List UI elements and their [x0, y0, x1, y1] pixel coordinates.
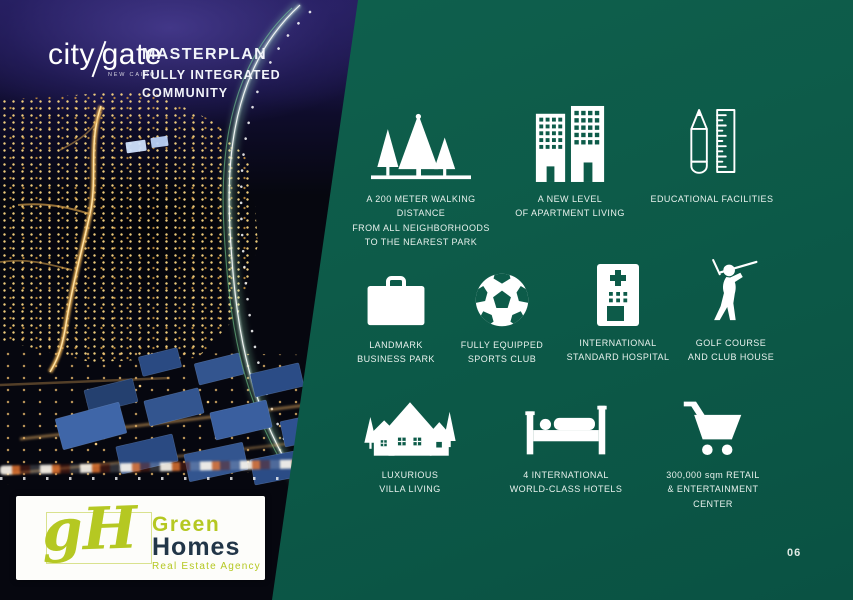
title-masterplan: MASTERPLAN [142, 46, 281, 64]
hospital-icon [595, 262, 641, 328]
feature-label: FULLY EQUIPPED SPORTS CLUB [461, 338, 544, 367]
feature-label: A 200 METER WALKING DISTANCE FROM ALL NE… [346, 192, 496, 250]
briefcase-icon [364, 274, 428, 330]
feature-sports-club: FULLY EQUIPPED SPORTS CLUB [447, 258, 557, 367]
trees-icon [371, 110, 471, 184]
agency-name-homes: Homes [152, 534, 261, 560]
gh-monogram-wrap: gH [16, 496, 128, 580]
feature-education: EDUCATIONAL FACILITIES [644, 96, 780, 206]
villas-icon [358, 398, 462, 460]
title-fully-integrated: FULLY INTEGRATED [142, 68, 281, 82]
brand-part1: city [48, 40, 95, 70]
feature-label: 4 INTERNATIONAL WORLD-CLASS HOTELS [510, 468, 623, 497]
title-community: COMMUNITY [142, 86, 281, 100]
pencil-ruler-icon [681, 98, 743, 184]
feature-label: LANDMARK BUSINESS PARK [357, 338, 435, 367]
feature-label: EDUCATIONAL FACILITIES [651, 192, 774, 206]
gh-monogram: gH [41, 498, 138, 559]
feature-label: INTERNATIONAL STANDARD HOSPITAL [567, 336, 670, 365]
feature-retail: 300,000 sqm RETAIL & ENTERTAINMENT CENTE… [646, 392, 780, 511]
bed-icon [523, 402, 609, 460]
feature-label: LUXURIOUS VILLA LIVING [379, 468, 440, 497]
feature-label: A NEW LEVEL OF APARTMENT LIVING [515, 192, 625, 221]
soccer-ball-icon [472, 270, 532, 330]
feature-villas: LUXURIOUS VILLA LIVING [350, 396, 470, 497]
feature-label: GOLF COURSE AND CLUB HOUSE [688, 336, 774, 365]
feature-label: 300,000 sqm RETAIL & ENTERTAINMENT CENTE… [666, 468, 759, 511]
agency-tagline: Real Estate Agency [152, 561, 261, 572]
feature-business-park: LANDMARK BUSINESS PARK [341, 260, 451, 367]
slide-titles: MASTERPLAN FULLY INTEGRATED COMMUNITY [142, 46, 281, 100]
page-number: 06 [787, 547, 801, 559]
golfer-icon [700, 256, 762, 328]
feature-park: A 200 METER WALKING DISTANCE FROM ALL NE… [346, 98, 496, 250]
feature-hospital: INTERNATIONAL STANDARD HOSPITAL [558, 256, 678, 365]
green-homes-logo: gH Green Homes Real Estate Agency [16, 496, 265, 580]
apartments-icon [532, 102, 608, 184]
feature-hotels: 4 INTERNATIONAL WORLD-CLASS HOTELS [498, 398, 634, 497]
cart-icon [680, 398, 746, 460]
feature-golf: GOLF COURSE AND CLUB HOUSE [669, 252, 793, 365]
feature-apartments: A NEW LEVEL OF APARTMENT LIVING [505, 98, 635, 221]
slide: city gate NEW CAIRO MASTERPLAN FULLY INT… [0, 0, 853, 600]
